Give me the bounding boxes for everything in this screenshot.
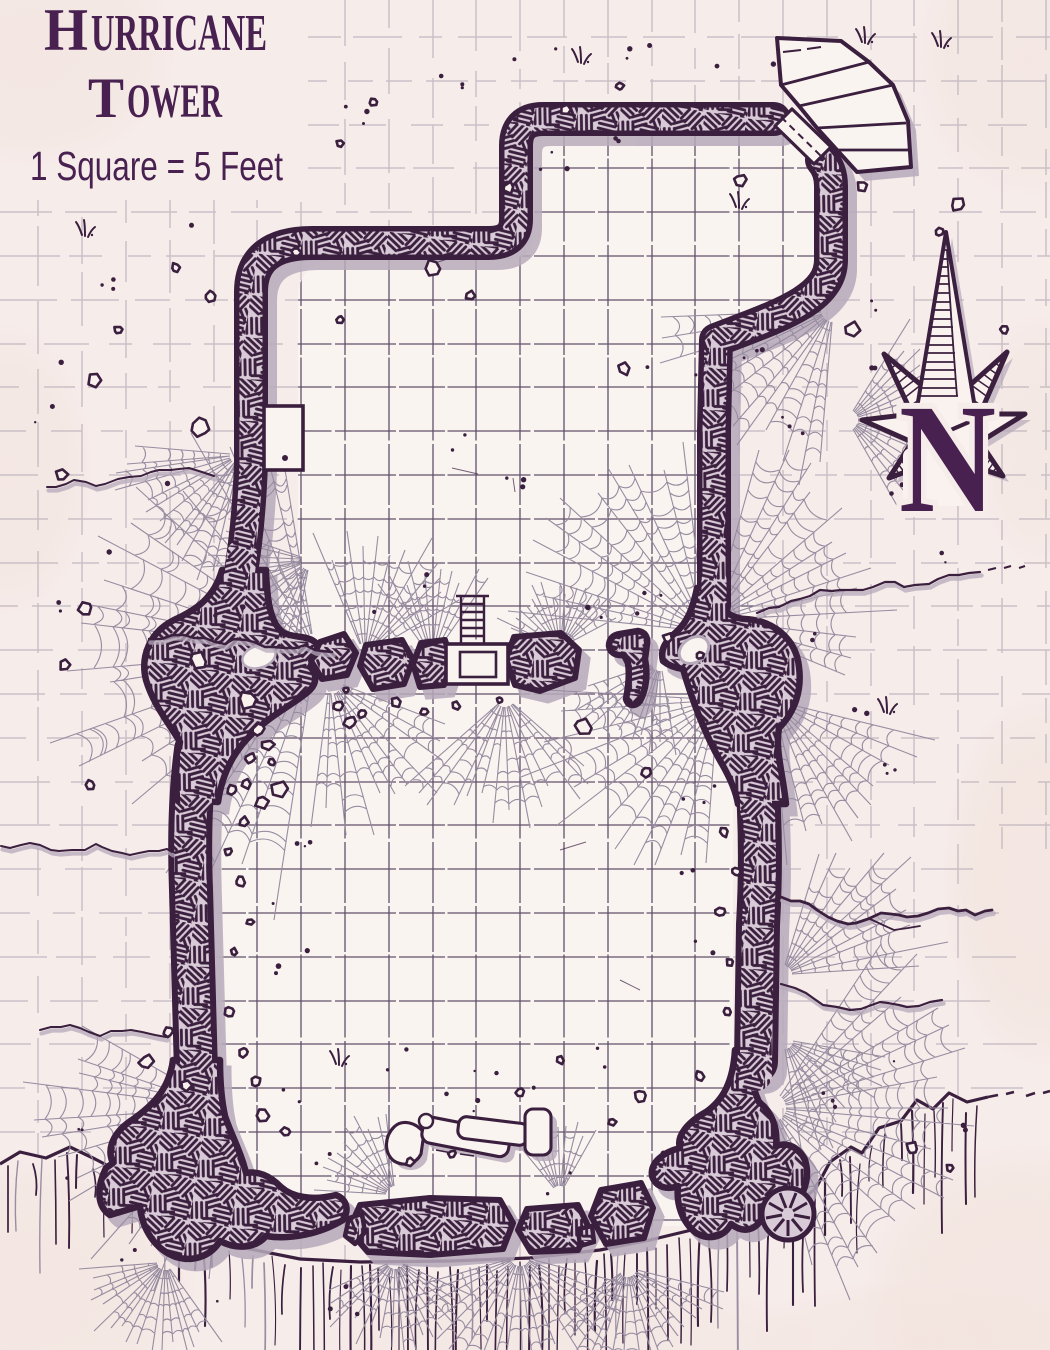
- svg-text:1 Square = 5 Feet: 1 Square = 5 Feet: [30, 143, 283, 189]
- svg-text:H: H: [44, 0, 88, 63]
- svg-text:T: T: [88, 67, 124, 130]
- svg-text:URRICANE: URRICANE: [91, 5, 267, 62]
- svg-text:N: N: [899, 372, 996, 545]
- svg-text:OWER: OWER: [127, 75, 223, 128]
